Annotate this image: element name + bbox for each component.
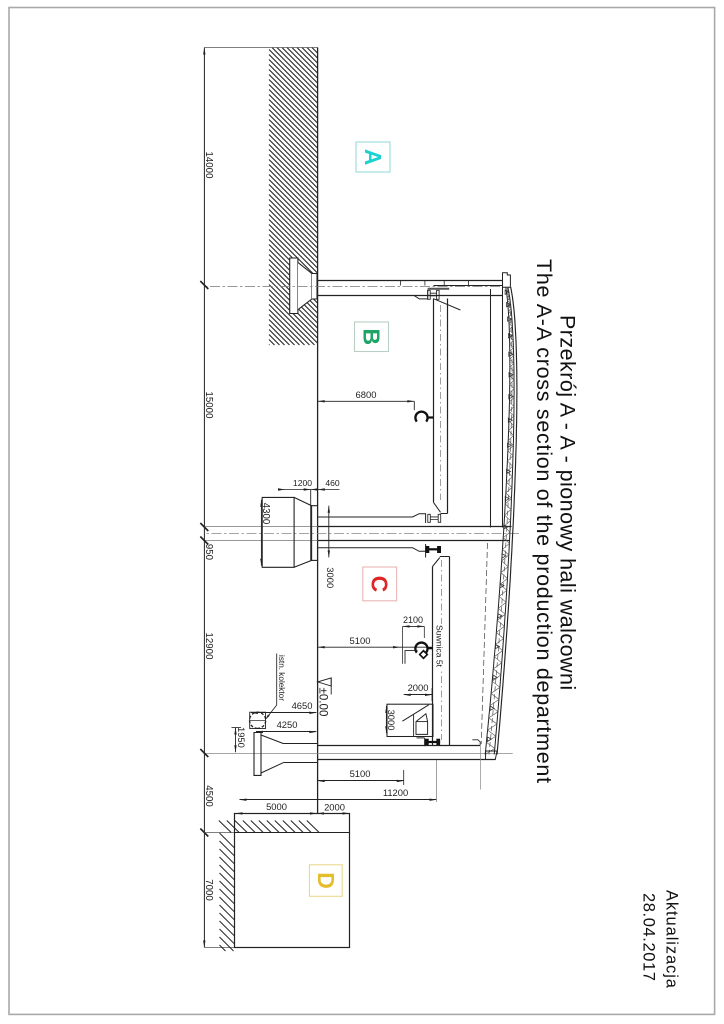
svg-text:Przekrój A - A - pionowy hali: Przekrój A - A - pionowy hali walcowni xyxy=(556,315,580,691)
svg-text:4300: 4300 xyxy=(260,503,271,525)
svg-text:7000: 7000 xyxy=(203,879,214,901)
svg-text:istn. kolektor: istn. kolektor xyxy=(277,655,286,701)
svg-text:12900: 12900 xyxy=(203,633,214,661)
svg-text:15000: 15000 xyxy=(203,392,214,420)
svg-text:C: C xyxy=(367,576,393,593)
svg-text:A: A xyxy=(360,149,386,166)
svg-text:Aktualizacja: Aktualizacja xyxy=(663,890,681,989)
svg-text:5000: 5000 xyxy=(266,801,287,812)
svg-text:1200: 1200 xyxy=(293,478,312,488)
svg-text:4650: 4650 xyxy=(292,700,313,711)
svg-text:2000: 2000 xyxy=(324,802,345,813)
svg-text:5100: 5100 xyxy=(350,635,371,646)
svg-text:5100: 5100 xyxy=(350,768,371,779)
svg-text:950: 950 xyxy=(203,544,214,561)
svg-text:2100: 2100 xyxy=(403,615,423,625)
svg-text:1950: 1950 xyxy=(236,727,247,748)
svg-text:4250: 4250 xyxy=(277,719,298,730)
svg-text:3000: 3000 xyxy=(386,710,397,731)
svg-text:The A-A cross section of the p: The A-A cross section of the production … xyxy=(532,259,556,784)
svg-text:2000: 2000 xyxy=(408,682,429,693)
svg-text:14000: 14000 xyxy=(203,152,214,180)
svg-text:6800: 6800 xyxy=(356,389,377,400)
svg-text:11200: 11200 xyxy=(383,787,408,798)
svg-text:3000: 3000 xyxy=(325,567,336,588)
svg-text:4500: 4500 xyxy=(203,785,214,807)
svg-text:28.04.2017: 28.04.2017 xyxy=(640,893,658,982)
svg-text:B: B xyxy=(359,328,385,345)
svg-text:±0.00: ±0.00 xyxy=(317,688,330,717)
svg-text:D: D xyxy=(313,872,339,889)
svg-text:Suwnica 5t: Suwnica 5t xyxy=(435,625,445,668)
svg-text:460: 460 xyxy=(325,478,340,488)
